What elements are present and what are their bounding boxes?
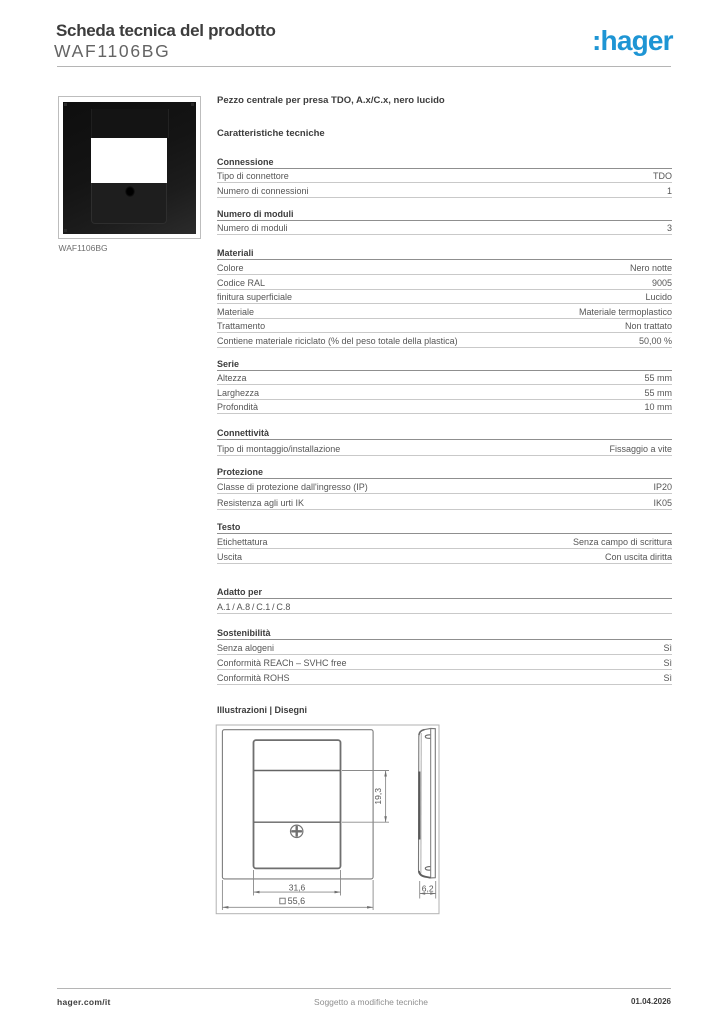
svg-text:55,6: 55,6 (288, 896, 306, 906)
svg-text:6,2: 6,2 (422, 883, 434, 893)
svg-text:19,3: 19,3 (373, 788, 383, 805)
svg-text:31,6: 31,6 (289, 883, 306, 893)
